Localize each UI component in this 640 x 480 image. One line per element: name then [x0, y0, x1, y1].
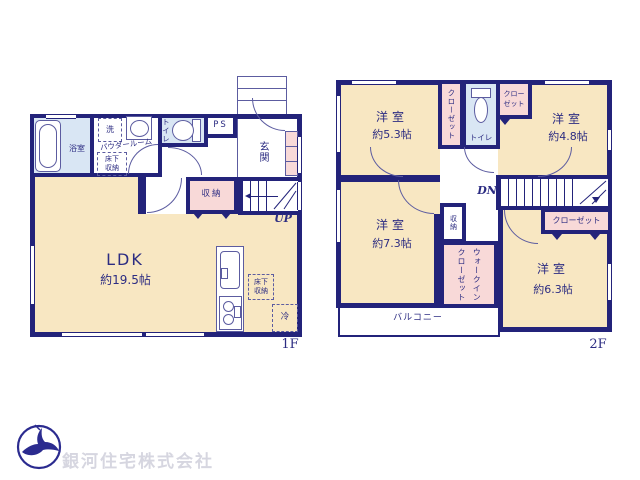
room-se-size: 約6.3帖 — [523, 283, 583, 298]
window — [46, 114, 76, 119]
stair-arrow-head — [245, 193, 251, 199]
closet-door-mark — [500, 119, 510, 125]
window — [545, 80, 589, 85]
stair-direction-arrow — [250, 196, 278, 197]
room-ne-size: 約4.8帖 — [538, 130, 598, 145]
floor2-label: 2F — [584, 338, 612, 352]
closet-door-mark — [193, 213, 203, 219]
closet-door-mark — [221, 213, 231, 219]
walk-in-closet-label: ウォークイン クローゼット — [444, 245, 494, 304]
wall-segment — [138, 177, 146, 214]
closet-nw-label: クローゼット — [443, 84, 459, 145]
storage-label-1f: 収納 — [188, 185, 236, 205]
window — [336, 96, 341, 152]
wall-segment — [434, 214, 442, 308]
window — [146, 332, 204, 337]
balcony-label: バルコニー — [368, 312, 468, 326]
window — [336, 190, 341, 242]
kitchen-faucet-icon — [221, 268, 228, 279]
floor-plan-canvas: 浴室 洗 パウダールーム 床下 収納 トイレ PS 玄関 収納 UP LDK 約… — [0, 0, 640, 480]
entrance-label: 玄関 — [255, 134, 270, 170]
company-name: 銀河住宅株式会社 — [62, 447, 214, 472]
room-se-label: 洋室 — [523, 262, 583, 278]
ldk-room-label: LDK — [95, 250, 155, 270]
window — [607, 130, 612, 150]
ldk-size-label: 約19.5帖 — [88, 273, 163, 289]
window — [352, 80, 396, 85]
room-nw-size: 約5.3帖 — [362, 128, 422, 143]
closet-door-mark — [552, 234, 562, 240]
toilet-bowl-icon-1f — [172, 120, 194, 141]
dn-label: DN — [476, 184, 498, 198]
room-sw-size: 約7.3帖 — [362, 237, 422, 252]
window — [30, 246, 35, 304]
stair-arrow-head — [592, 197, 600, 203]
room-ne-label: 洋室 — [538, 112, 598, 128]
underfloor-kitchen-label: 床下 収納 — [248, 276, 274, 298]
bird-logo-icon — [14, 422, 64, 472]
window — [297, 137, 302, 173]
toilet-bowl-icon-2f — [474, 97, 488, 123]
toilet-label-1f: トイレ — [160, 116, 171, 145]
bathroom-label: 浴室 — [62, 143, 92, 155]
washer-label: 洗 — [98, 121, 122, 139]
storage-label-2f: 収納 — [444, 206, 462, 240]
window — [607, 264, 612, 300]
floor1-label: 1F — [276, 338, 304, 352]
closet-ne-label: クロー ゼット — [498, 84, 530, 115]
pipe-space-label: PS — [204, 116, 237, 136]
stove-icon — [219, 296, 242, 330]
underfloor-storage-label: 床下 収納 — [97, 153, 127, 175]
bathtub-icon — [35, 120, 61, 172]
refrigerator-label: 冷 — [272, 308, 298, 328]
closet-door-mark — [590, 234, 600, 240]
window — [62, 332, 142, 337]
room-nw-label: 洋室 — [362, 110, 422, 126]
room-sw-label: 洋室 — [362, 218, 422, 234]
closet-se-label: クローゼット — [543, 212, 610, 230]
window — [297, 182, 302, 210]
up-label: UP — [268, 212, 298, 226]
toilet-label-2f: トイレ — [463, 131, 499, 144]
